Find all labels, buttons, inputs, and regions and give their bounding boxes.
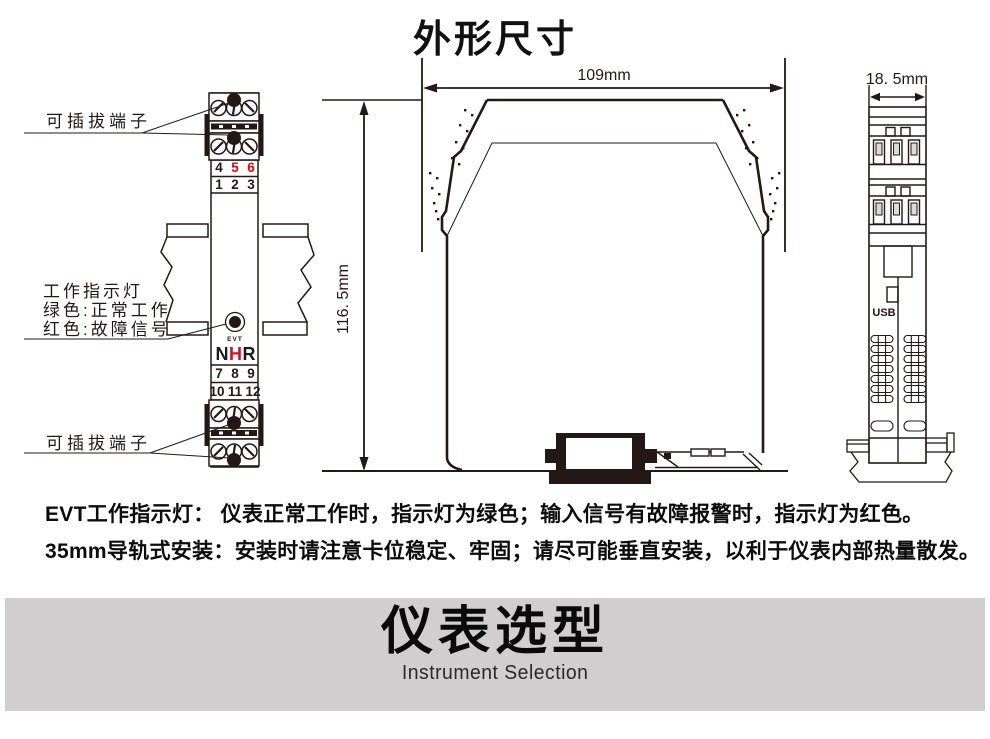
logo-letter-h: H	[229, 344, 242, 364]
din-rail-clip	[545, 433, 657, 484]
note-rail-mounting: 35mm导轨式安装：安装时请注意卡位稳定、牢固；请尽可能垂直安装，以利于仪表内部…	[45, 533, 975, 570]
terminal-3: 3	[247, 177, 255, 192]
end-view-body	[869, 107, 926, 463]
end-view: 18. 5mm	[847, 71, 954, 482]
leader-dot	[227, 131, 241, 145]
leader-dot	[227, 416, 241, 430]
terminal-11: 11	[228, 384, 243, 399]
terminal-5: 5	[231, 160, 239, 175]
banner-title: 仪表选型	[381, 604, 609, 660]
logo-letter-r: R	[243, 344, 256, 364]
height-dimension-label: 116. 5mm	[335, 264, 352, 334]
terminal-block-top	[205, 93, 264, 160]
leader-dot	[227, 453, 241, 467]
note-evt-indicator: EVT工作指示灯： 仪表正常工作时，指示灯为绿色；输入信号有故障报警时，指示灯为…	[45, 496, 975, 533]
rail-end-assembly	[655, 449, 762, 470]
terminal-1: 1	[215, 177, 223, 192]
side-view: 109mm 116. 5mm	[322, 58, 788, 484]
terminal-7: 7	[215, 366, 223, 381]
terminal-10: 10	[209, 384, 224, 399]
end-width-dimension-label: 18. 5mm	[866, 71, 928, 88]
width-dimension-18-5: 18. 5mm	[866, 71, 928, 107]
section-banner: 仪表选型 Instrument Selection	[5, 598, 985, 711]
usb-label: USB	[872, 307, 895, 319]
evt-indicator-light: EVT	[226, 313, 245, 344]
indicator-light-label: 工作指示灯 绿色:正常工作 红色:故障信号	[43, 282, 171, 339]
indicator-label-line3: 红色:故障信号	[43, 320, 171, 339]
terminal-4: 4	[215, 160, 223, 175]
banner-subtitle: Instrument Selection	[402, 662, 589, 685]
height-dimension-116-5: 116. 5mm	[322, 100, 422, 471]
front-view: 4 5 6 1 2 3 7 8 9 10 11 12 EVT N	[24, 93, 314, 467]
notes-block: EVT工作指示灯： 仪表正常工作时，指示灯为绿色；输入信号有故障报警时，指示灯为…	[45, 496, 975, 570]
width-dimension-label: 109mm	[577, 67, 630, 84]
terminal-9: 9	[247, 366, 255, 381]
terminal-6: 6	[247, 160, 255, 175]
evt-indicator-label: EVT	[227, 336, 243, 343]
terminal-8: 8	[231, 366, 239, 381]
callout-leader-lines	[24, 103, 229, 458]
pluggable-terminal-label-top: 可插拔端子	[46, 107, 151, 132]
datasheet-page: 外形尺寸	[0, 0, 990, 739]
pluggable-terminal-label-bottom: 可插拔端子	[46, 429, 151, 454]
width-dimension-109: 109mm	[422, 58, 785, 252]
leader-dot	[227, 93, 241, 107]
terminal-2: 2	[231, 177, 239, 192]
terminal-12: 12	[245, 384, 260, 399]
nhr-logo: N H R	[216, 344, 256, 364]
indicator-label-line1: 工作指示灯	[43, 282, 171, 301]
indicator-label-line2: 绿色:正常工作	[43, 301, 171, 320]
module-inner-lines	[447, 143, 763, 236]
logo-letter-n: N	[216, 344, 229, 364]
module-profile	[442, 100, 768, 470]
